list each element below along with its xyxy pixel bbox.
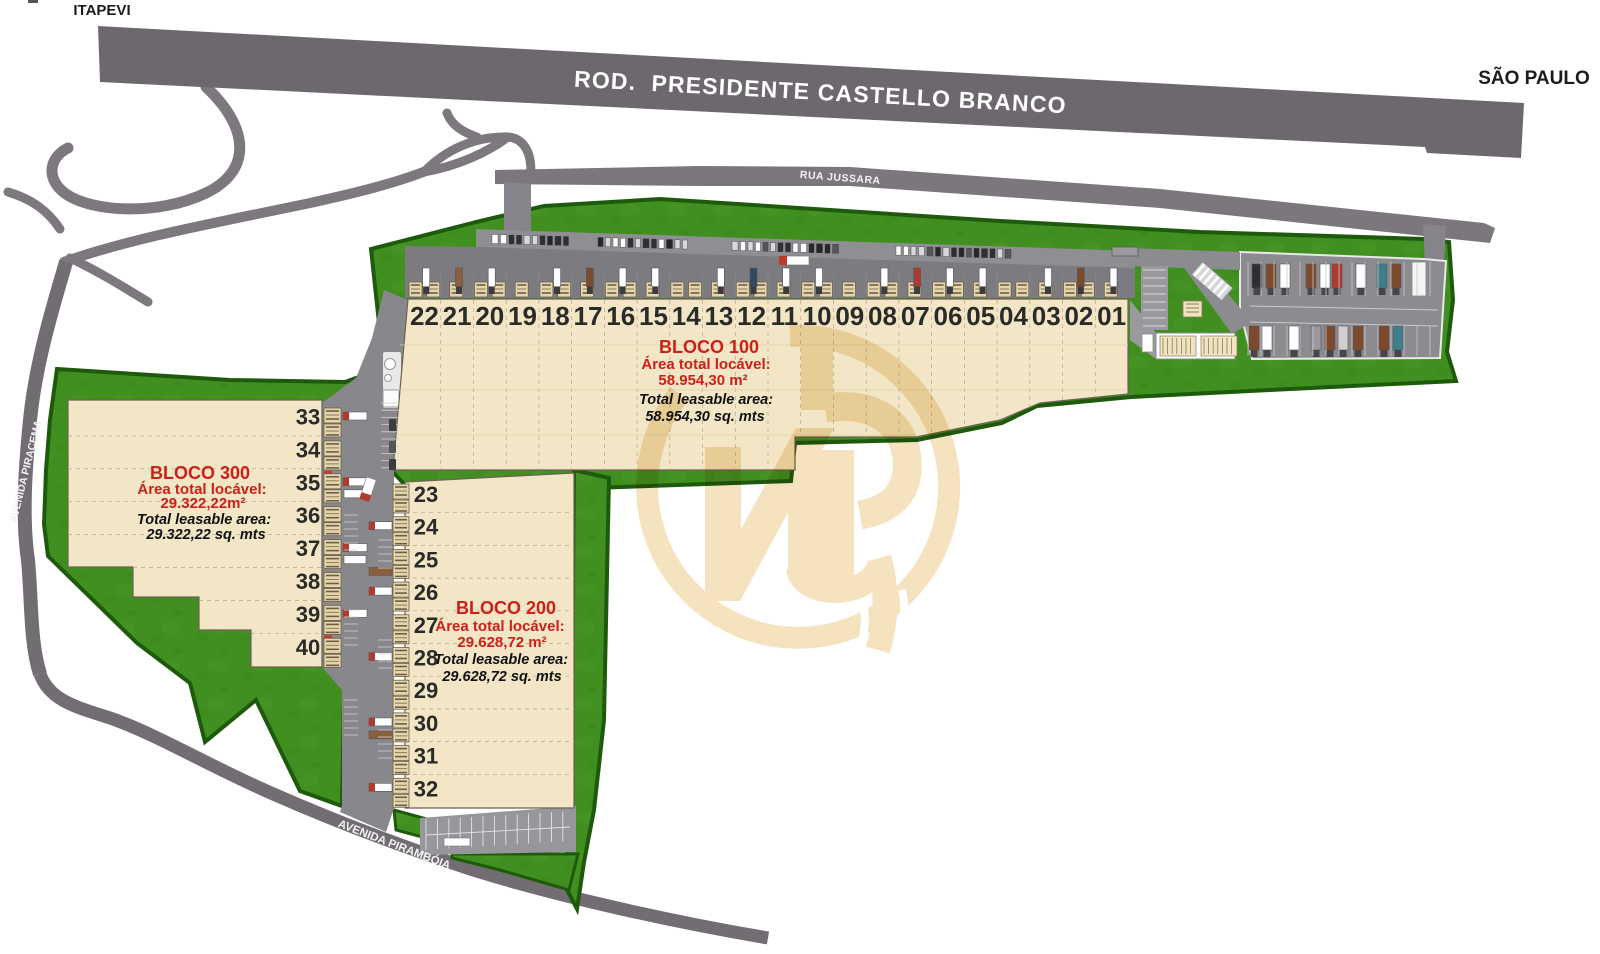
svg-text:38: 38 xyxy=(296,569,320,594)
svg-text:21: 21 xyxy=(443,301,472,331)
svg-text:19: 19 xyxy=(508,301,537,331)
svg-text:BLOCO 300: BLOCO 300 xyxy=(150,463,250,483)
svg-text:29.322,22 sq. mts: 29.322,22 sq. mts xyxy=(145,527,265,543)
svg-text:29.322,22m²: 29.322,22m² xyxy=(160,495,245,512)
svg-text:30: 30 xyxy=(414,711,438,736)
svg-text:09: 09 xyxy=(835,301,864,331)
svg-text:13: 13 xyxy=(704,301,733,331)
svg-text:20: 20 xyxy=(475,301,504,331)
svg-text:18: 18 xyxy=(541,301,570,331)
svg-text:Total leasable area:: Total leasable area: xyxy=(434,652,568,668)
svg-text:01: 01 xyxy=(1097,301,1126,331)
svg-text:16: 16 xyxy=(606,301,635,331)
svg-text:05: 05 xyxy=(966,301,995,331)
svg-text:12: 12 xyxy=(737,301,766,331)
svg-text:29.628,72 sq. mts: 29.628,72 sq. mts xyxy=(441,669,561,685)
svg-text:22: 22 xyxy=(410,301,439,331)
svg-text:15: 15 xyxy=(639,301,668,331)
svg-text:36: 36 xyxy=(296,503,320,528)
svg-text:24: 24 xyxy=(414,515,439,540)
svg-text:25: 25 xyxy=(414,547,438,572)
svg-text:02: 02 xyxy=(1064,301,1093,331)
svg-text:34: 34 xyxy=(296,437,321,462)
svg-text:23: 23 xyxy=(414,482,438,507)
svg-text:58.954,30 m²: 58.954,30 m² xyxy=(658,372,747,389)
svg-text:04: 04 xyxy=(999,301,1028,331)
svg-text:32: 32 xyxy=(414,776,438,801)
svg-text:37: 37 xyxy=(296,536,320,561)
svg-text:03: 03 xyxy=(1032,301,1061,331)
svg-text:Área total locável:: Área total locável: xyxy=(435,618,564,635)
svg-text:SÃO PAULO: SÃO PAULO xyxy=(1478,67,1590,89)
svg-text:33: 33 xyxy=(296,405,320,430)
svg-text:14: 14 xyxy=(672,301,701,331)
svg-text:06: 06 xyxy=(934,301,963,331)
svg-text:08: 08 xyxy=(868,301,897,331)
svg-text:ITAPEVI: ITAPEVI xyxy=(73,2,130,19)
svg-text:Total leasable area:: Total leasable area: xyxy=(137,512,271,528)
svg-text:29: 29 xyxy=(414,678,438,703)
svg-text:39: 39 xyxy=(296,602,320,627)
svg-text:Área total locável:: Área total locável: xyxy=(641,356,770,373)
svg-text:35: 35 xyxy=(296,470,320,495)
svg-text:29.628,72 m²: 29.628,72 m² xyxy=(457,634,546,651)
svg-text:26: 26 xyxy=(414,580,438,605)
svg-text:BLOCO 200: BLOCO 200 xyxy=(456,598,556,618)
svg-text:17: 17 xyxy=(574,301,603,331)
svg-text:31: 31 xyxy=(414,744,438,769)
svg-text:BLOCO 100: BLOCO 100 xyxy=(659,337,759,357)
svg-text:40: 40 xyxy=(296,635,320,660)
svg-text:07: 07 xyxy=(901,301,930,331)
